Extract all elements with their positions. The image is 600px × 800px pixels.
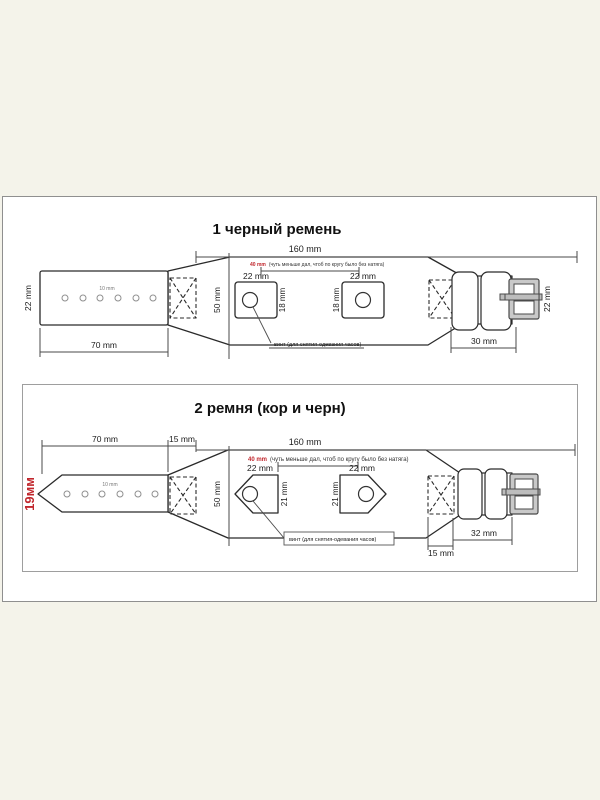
keeper-loop-1: [452, 272, 478, 330]
buckle-window-bottom: [515, 496, 533, 509]
dim-50-label: 50 mm: [212, 481, 222, 507]
hole-pitch-label: 10 mm: [99, 286, 114, 292]
pad-right-height-label: 18 mm: [332, 287, 341, 312]
hole-pitch-label: 10 mm: [102, 482, 117, 488]
pad-right-width-label: 22 mm: [349, 463, 375, 473]
drawing-sheet: 1 черный ремень 10 mm: [0, 0, 600, 800]
buckle-width-label: 22 mm: [542, 286, 552, 312]
screw-note: винт (для снятия-одевания часов): [289, 537, 376, 543]
strap-tail: [40, 271, 168, 325]
dim-70-label: 70 mm: [91, 340, 117, 350]
screw-hole-right: [359, 487, 374, 502]
keeper-loop-1: [458, 469, 482, 519]
drawing1-title: 1 черный ремень: [212, 221, 341, 238]
pad-left-width-label: 22 mm: [243, 271, 269, 281]
pad-right-width-label: 22 mm: [350, 271, 376, 281]
dim-32-label: 32 mm: [471, 528, 497, 538]
drawing2-title: 2 ремня (кор и черн): [194, 400, 345, 417]
buckle-window-bottom: [514, 301, 534, 314]
gap-note: 40 mm(чуть меньше дал, чтоб по кругу был…: [250, 262, 385, 268]
screw-hole-left: [243, 293, 258, 308]
strap-width-label: 19мм: [22, 477, 37, 511]
screw-hole-left: [243, 487, 258, 502]
dim-160-label: 160 mm: [289, 244, 322, 254]
pad-left-height-label: 18 mm: [278, 287, 287, 312]
dim-50-label: 50 mm: [212, 287, 222, 313]
strap-drawing-1: 1 черный ремень 10 mm: [2, 196, 597, 384]
pad-left-width-label: 22 mm: [247, 463, 273, 473]
tail-width-label: 22 mm: [23, 285, 33, 311]
buckle-tongue-tip: [506, 489, 538, 495]
strap-drawing-2: 2 ремня (кор и черн) 10 mm 19мм: [22, 384, 578, 572]
pad-left-height-label: 21 mm: [280, 481, 289, 506]
buckle-tongue-tip: [505, 294, 539, 300]
screw-note: винт (для снятия-одевания часов): [274, 342, 361, 348]
dim-15-top-label: 15 mm: [169, 434, 195, 444]
dim-15-bottom-label: 15 mm: [428, 548, 454, 558]
keeper-loop-2: [481, 272, 511, 330]
dim-70-label: 70 mm: [92, 434, 118, 444]
pad-right-height-label: 21 mm: [331, 481, 340, 506]
dim-160-label: 160 mm: [289, 437, 322, 447]
screw-hole-right: [356, 293, 371, 308]
dim-30-label: 30 mm: [471, 336, 497, 346]
